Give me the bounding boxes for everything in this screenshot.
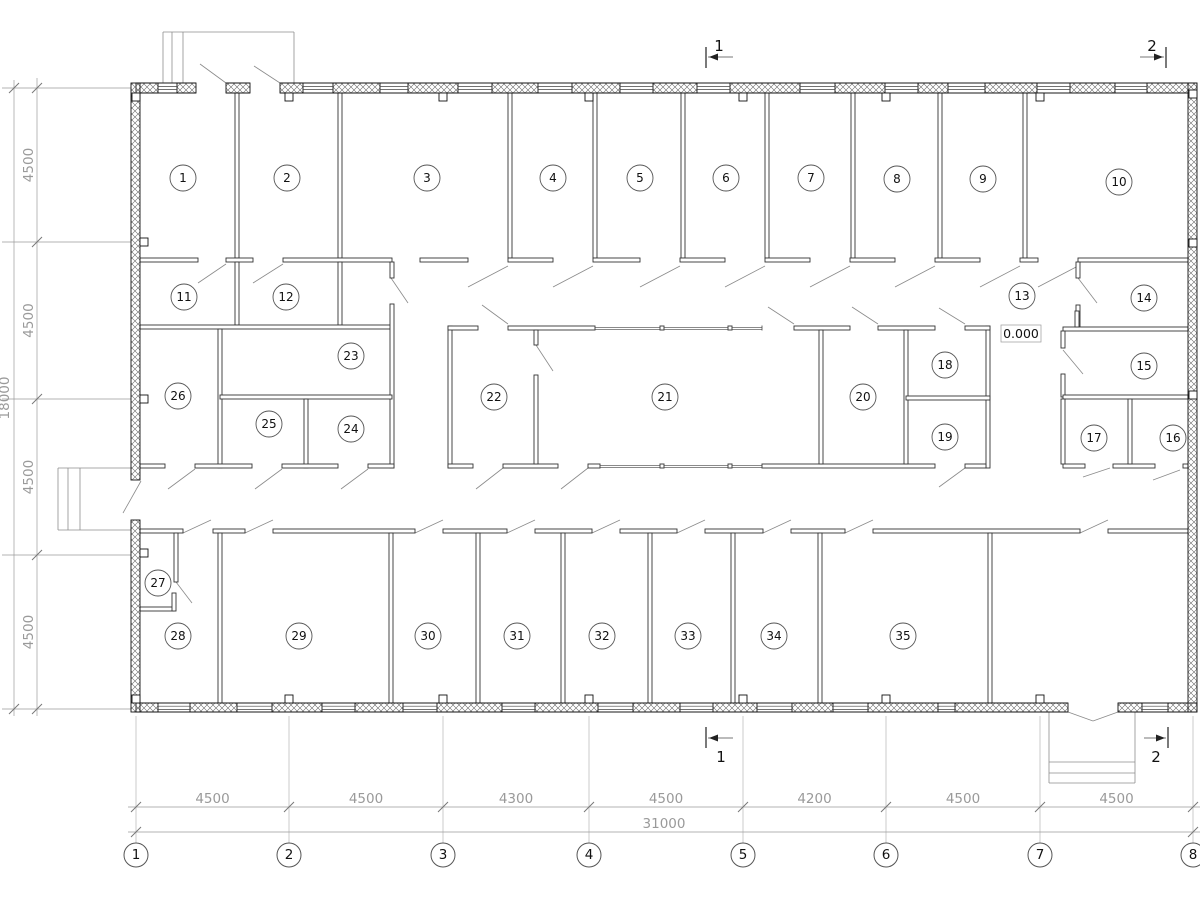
column-mark (1036, 695, 1044, 703)
wall (765, 93, 769, 258)
wall (195, 464, 252, 468)
wall (140, 464, 165, 468)
wall (1183, 464, 1188, 468)
exterior-wall-pier (535, 703, 598, 712)
dim-label: 4500 (1099, 791, 1133, 807)
column-mark (140, 549, 148, 557)
dim-label: 4500 (21, 460, 37, 494)
dim-label: 4500 (21, 303, 37, 337)
axis-bubble-label: 6 (882, 847, 891, 863)
room-number: 16 (1165, 431, 1180, 445)
wall (1061, 331, 1065, 348)
exterior-wall-pier (226, 83, 250, 93)
wall (561, 533, 565, 703)
room-number: 11 (176, 290, 191, 304)
exterior-wall-pier (492, 83, 538, 93)
room-number: 35 (895, 629, 910, 643)
room-number: 33 (680, 629, 695, 643)
wall (731, 533, 735, 703)
wall (534, 330, 538, 345)
room-number: 15 (1136, 359, 1151, 373)
exterior-wall-pier (918, 83, 948, 93)
room-number: 34 (766, 629, 781, 643)
wall (1075, 311, 1079, 327)
room-number: 8 (893, 172, 901, 186)
axis-bubble-label: 4 (585, 847, 594, 863)
room-number: 13 (1014, 289, 1029, 303)
wall (420, 258, 468, 262)
axis-bubbles: 12345678 (124, 843, 1200, 867)
exterior-wall-pier (1118, 703, 1142, 712)
wall (140, 258, 198, 262)
dim-label: 4500 (21, 148, 37, 182)
wall (818, 533, 822, 703)
column-mark (1036, 93, 1044, 101)
room-number: 23 (343, 349, 358, 363)
column-mark (739, 695, 747, 703)
grid-and-dimensions (2, 78, 1200, 846)
wall (508, 326, 595, 330)
wall (235, 262, 239, 325)
wall (1108, 529, 1188, 533)
wall (791, 529, 845, 533)
exterior-wall-pier (572, 83, 620, 93)
wall (1063, 395, 1188, 399)
dim-label: 4500 (649, 791, 683, 807)
column-mark (739, 93, 747, 101)
room-number: 28 (170, 629, 185, 643)
axis-bubble-label: 1 (132, 847, 141, 863)
wall (1076, 262, 1080, 278)
wall (282, 464, 338, 468)
wall (448, 464, 473, 468)
wall (508, 93, 512, 258)
wall (660, 464, 664, 468)
wall (965, 464, 986, 468)
wall (620, 529, 677, 533)
exterior-wall-pier (653, 83, 697, 93)
left-dimension-labels: 450045004500450018000 (0, 148, 37, 649)
exterior-wall-pier (713, 703, 757, 712)
wall (338, 262, 342, 325)
column-mark (132, 93, 140, 101)
exterior-wall-pier (190, 703, 237, 712)
room-number: 3 (423, 171, 431, 185)
wall (535, 529, 592, 533)
wall (680, 258, 725, 262)
room-number: 24 (343, 422, 358, 436)
wall (508, 258, 553, 262)
room-number: 21 (657, 390, 672, 404)
wall (503, 464, 558, 468)
wall (906, 396, 990, 400)
room-number: 7 (807, 171, 815, 185)
column-mark (140, 238, 148, 246)
room-number: 30 (420, 629, 435, 643)
wall (765, 258, 810, 262)
wall (728, 464, 732, 468)
wall (728, 326, 732, 330)
exterior-wall-pier (355, 703, 403, 712)
exterior-wall-pier (333, 83, 380, 93)
column-mark (439, 93, 447, 101)
column-mark (585, 695, 593, 703)
floor-plan-drawing: 4500450043004500420045004500310004500450… (0, 0, 1200, 900)
wall (648, 533, 652, 703)
column-mark (285, 93, 293, 101)
wall (273, 529, 415, 533)
column-mark (882, 695, 890, 703)
exterior-wall-pier (408, 83, 458, 93)
room-number: 20 (855, 390, 870, 404)
dim-label: 4300 (499, 791, 533, 807)
wall (172, 593, 176, 611)
wall (593, 258, 640, 262)
wall (443, 529, 507, 533)
room-number: 22 (486, 390, 501, 404)
wall (390, 262, 394, 278)
wall (448, 326, 478, 330)
column-mark (1189, 90, 1197, 98)
wall (938, 93, 942, 258)
column-mark (882, 93, 890, 101)
elevation-marker: 0.000 (1001, 325, 1041, 342)
wall (1020, 258, 1038, 262)
wall (1078, 258, 1188, 262)
wall (140, 325, 392, 329)
elevation-label: 0.000 (1003, 326, 1039, 341)
exterior-wall-pier (272, 703, 322, 712)
wall (681, 93, 685, 258)
wall (1128, 399, 1132, 464)
dim-label: 4500 (21, 615, 37, 649)
wall (283, 258, 392, 262)
wall (1061, 399, 1065, 464)
wall (705, 529, 763, 533)
axis-bubble-label: 8 (1189, 847, 1198, 863)
room-number: 4 (549, 171, 557, 185)
section-label: 1 (716, 748, 726, 766)
room-number: 6 (722, 171, 730, 185)
exterior-wall-pier (131, 83, 140, 480)
wall (1113, 464, 1155, 468)
room-number: 17 (1086, 431, 1101, 445)
wall (235, 93, 239, 258)
wall (794, 326, 850, 330)
room-number: 14 (1136, 291, 1151, 305)
wall (389, 533, 393, 703)
wall (140, 529, 183, 533)
room-number: 32 (594, 629, 609, 643)
room-number: 29 (291, 629, 306, 643)
axis-bubble-label: 5 (739, 847, 748, 863)
dim-label: 4500 (195, 791, 229, 807)
exterior-wall-pier (792, 703, 833, 712)
column-mark (439, 695, 447, 703)
column-mark (1189, 391, 1197, 399)
wall (476, 533, 480, 703)
axis-bubble-label: 7 (1036, 847, 1045, 863)
room-number: 27 (150, 576, 165, 590)
column-mark (1189, 239, 1197, 247)
room-number: 26 (170, 389, 185, 403)
room-number: 25 (261, 417, 276, 431)
wall (390, 304, 394, 468)
wall (174, 533, 178, 582)
section-label: 1 (714, 37, 724, 55)
section-label: 2 (1151, 748, 1161, 766)
exterior-wall-pier (437, 703, 502, 712)
exterior-wall-pier (730, 83, 800, 93)
axis-bubble-label: 2 (285, 847, 294, 863)
exterior-wall-pier (1070, 83, 1115, 93)
wall (534, 375, 538, 464)
wall (762, 464, 935, 468)
wall (660, 326, 664, 330)
wall (1063, 464, 1085, 468)
column-mark (585, 93, 593, 101)
wall (851, 93, 855, 258)
wall (593, 93, 597, 258)
wall (1061, 374, 1065, 397)
room-number: 9 (979, 172, 987, 186)
exterior-wall-pier (280, 83, 303, 93)
section-markers: 1212 (706, 37, 1168, 766)
wall (140, 607, 174, 611)
room-number: 10 (1111, 175, 1126, 189)
wall (218, 533, 222, 703)
exterior-wall-pier (985, 83, 1037, 93)
room-number: 1 (179, 171, 187, 185)
wall (1063, 327, 1188, 331)
room-number: 31 (509, 629, 524, 643)
room-number: 5 (636, 171, 644, 185)
room-number: 12 (278, 290, 293, 304)
exterior-wall-pier (955, 703, 1068, 712)
column-mark (285, 695, 293, 703)
wall (935, 258, 980, 262)
wall (873, 529, 1080, 533)
wall (368, 464, 394, 468)
room-number: 19 (937, 430, 952, 444)
wall (965, 326, 990, 330)
dim-total-label: 31000 (643, 816, 686, 832)
floor-plan-page: 4500450043004500420045004500310004500450… (0, 0, 1200, 900)
wall (213, 529, 245, 533)
wall (850, 258, 895, 262)
column-mark (140, 395, 148, 403)
exterior-wall-pier (177, 83, 196, 93)
axis-bubble-label: 3 (439, 847, 448, 863)
exterior-wall-pier (131, 520, 140, 712)
wall (878, 326, 935, 330)
column-mark (132, 695, 140, 703)
wall (304, 399, 308, 468)
dim-total-label: 18000 (0, 377, 13, 420)
exterior-wall-pier (835, 83, 885, 93)
wall (338, 93, 342, 258)
interior-windows (595, 326, 762, 469)
wall (448, 326, 452, 468)
dim-label: 4200 (797, 791, 831, 807)
wall (588, 464, 600, 468)
wall (819, 330, 823, 464)
section-label: 2 (1147, 37, 1157, 55)
room-labels: 1234567891011121314151617181920212223242… (145, 165, 1186, 649)
bottom-dimension-labels: 450045004300450042004500450031000 (195, 791, 1133, 832)
exterior-wall-pier (868, 703, 938, 712)
wall (226, 258, 253, 262)
dim-label: 4500 (946, 791, 980, 807)
wall (988, 533, 992, 703)
exterior-wall-pier (633, 703, 680, 712)
wall (220, 395, 392, 399)
room-number: 18 (937, 358, 952, 372)
dim-label: 4500 (349, 791, 383, 807)
wall (1023, 93, 1027, 258)
room-number: 2 (283, 171, 291, 185)
